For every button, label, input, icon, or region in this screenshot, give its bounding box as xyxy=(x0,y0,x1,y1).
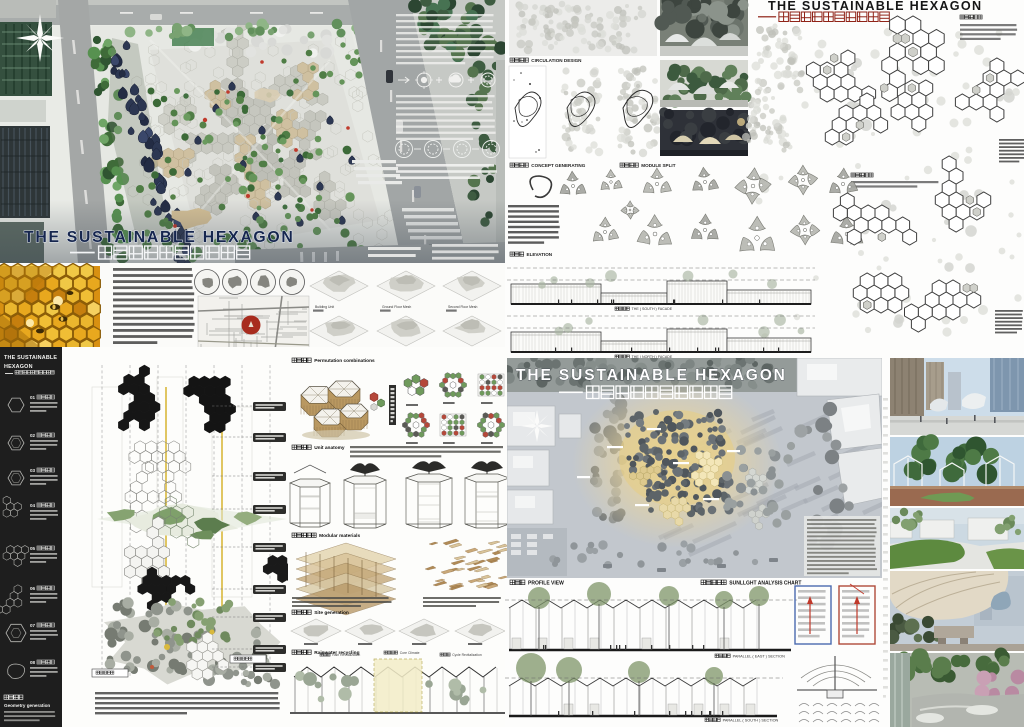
svg-text:Building Unit: Building Unit xyxy=(315,305,334,309)
svg-text:Geometry generation: Geometry generation xyxy=(4,703,50,708)
svg-text:SUNLLGHT ANALYSIS CHART: SUNLLGHT ANALYSIS CHART xyxy=(729,580,801,586)
svg-text:PARALLEL ( EAST ) SECTION: PARALLEL ( EAST ) SECTION xyxy=(733,654,786,658)
svg-text:PROFILE VIEW: PROFILE VIEW xyxy=(528,580,564,586)
svg-text:CIRCULATION DESIGN: CIRCULATION DESIGN xyxy=(531,58,582,63)
svg-text:01: 01 xyxy=(30,395,36,400)
svg-text:Second Floor Mesh: Second Floor Mesh xyxy=(448,305,478,309)
svg-text:Cycle Revitalization: Cycle Revitalization xyxy=(452,653,482,657)
svg-text:Site generation: Site generation xyxy=(314,610,349,616)
svg-text:THE SUSTAINABLE HEXAGON: THE SUSTAINABLE HEXAGON xyxy=(516,367,787,384)
svg-text:MODULE SPLIT: MODULE SPLIT xyxy=(641,163,675,168)
svg-text:Unit anatomy: Unit anatomy xyxy=(314,445,345,451)
svg-text:THE SUSTAINABLE HEXAGON: THE SUSTAINABLE HEXAGON xyxy=(24,229,295,246)
svg-text:Rain Revitalization: Rain Revitalization xyxy=(332,653,360,657)
svg-text:06: 06 xyxy=(30,586,36,591)
svg-text:Ground Floor Mesh: Ground Floor Mesh xyxy=(382,305,411,309)
svg-text:THE ( SOUTH ) FACADE: THE ( SOUTH ) FACADE xyxy=(632,307,673,311)
svg-text:04: 04 xyxy=(30,503,36,508)
svg-text:HEXAGON: HEXAGON xyxy=(4,364,33,370)
svg-text:Core Climate: Core Climate xyxy=(400,651,420,655)
svg-text:CONCEPT GENERATING: CONCEPT GENERATING xyxy=(531,163,585,168)
svg-text:08: 08 xyxy=(30,660,36,665)
svg-text:THE SUSTAINABLE HEXAGON: THE SUSTAINABLE HEXAGON xyxy=(768,0,982,13)
svg-text:THE SUSTAINABLE: THE SUSTAINABLE xyxy=(4,355,57,361)
svg-text:02: 02 xyxy=(30,433,36,438)
svg-text:03: 03 xyxy=(30,468,36,473)
svg-text:05: 05 xyxy=(30,546,36,551)
svg-text:ELEVATION: ELEVATION xyxy=(527,252,553,257)
svg-text:07: 07 xyxy=(30,623,36,628)
svg-text:Modular materials: Modular materials xyxy=(319,533,360,539)
svg-text:Permutation combinations: Permutation combinations xyxy=(314,358,375,364)
svg-text:PARALLEL ( SOUTH ) SECTION: PARALLEL ( SOUTH ) SECTION xyxy=(723,718,779,722)
